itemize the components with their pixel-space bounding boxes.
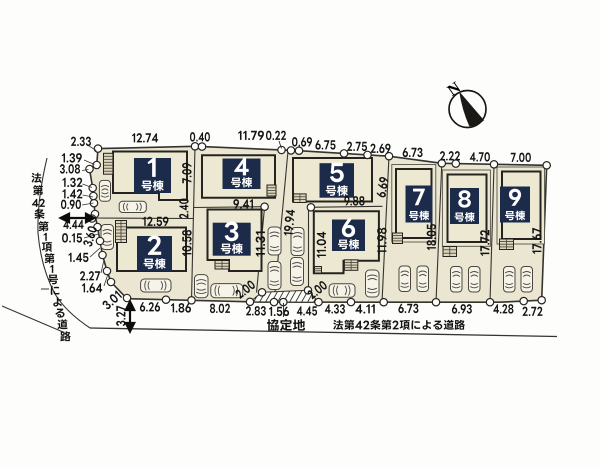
svg-text:6.93: 6.93: [452, 302, 473, 315]
svg-text:5: 5: [329, 160, 345, 186]
svg-text:4.70: 4.70: [470, 150, 491, 163]
svg-text:18.05: 18.05: [424, 223, 437, 250]
svg-text:る: る: [55, 307, 66, 319]
svg-text:1: 1: [147, 155, 158, 181]
svg-text:12.59: 12.59: [142, 215, 169, 228]
svg-text:2.22: 2.22: [440, 149, 461, 162]
svg-text:4.45: 4.45: [297, 304, 318, 317]
svg-text:42: 42: [32, 198, 46, 209]
svg-text:8.02: 8.02: [210, 302, 231, 315]
svg-text:1.45: 1.45: [68, 251, 89, 264]
svg-text:2: 2: [146, 233, 162, 259]
svg-text:3.08: 3.08: [60, 162, 81, 175]
svg-text:協定地: 協定地: [266, 319, 305, 333]
svg-text:11.31: 11.31: [254, 230, 267, 257]
svg-text:号棟: 号棟: [231, 177, 253, 189]
svg-text:項: 項: [42, 241, 53, 253]
svg-text:6.73: 6.73: [398, 302, 419, 315]
svg-text:7.09: 7.09: [180, 162, 193, 183]
svg-text:第: 第: [33, 185, 44, 197]
svg-text:1.64: 1.64: [82, 281, 103, 294]
svg-text:8: 8: [457, 187, 472, 211]
svg-text:0.22: 0.22: [266, 129, 287, 142]
svg-text:0.15: 0.15: [62, 231, 83, 244]
svg-text:0.69: 0.69: [292, 135, 313, 148]
svg-text:2.40: 2.40: [177, 198, 190, 219]
svg-text:2.33: 2.33: [71, 135, 92, 148]
svg-text:11.04: 11.04: [314, 231, 327, 258]
svg-text:法第42条第2項による道路: 法第42条第2項による道路: [333, 319, 466, 331]
svg-text:2.75: 2.75: [347, 139, 368, 152]
svg-text:0.40: 0.40: [190, 130, 211, 143]
svg-text:11.79: 11.79: [238, 129, 265, 142]
svg-text:6: 6: [341, 215, 356, 240]
svg-text:17.72: 17.72: [478, 229, 491, 256]
svg-text:1.86: 1.86: [171, 301, 192, 314]
svg-text:号棟: 号棟: [454, 211, 475, 223]
svg-text:0.90: 0.90: [61, 198, 82, 211]
svg-text:条: 条: [34, 208, 45, 220]
svg-text:17.67: 17.67: [530, 228, 543, 255]
svg-text:号棟: 号棟: [141, 179, 164, 192]
svg-text:1.56: 1.56: [269, 305, 290, 318]
svg-text:9.88: 9.88: [344, 194, 365, 207]
svg-text:2.69: 2.69: [370, 141, 391, 154]
svg-text:号棟: 号棟: [409, 210, 430, 222]
svg-text:6.26: 6.26: [140, 300, 161, 313]
svg-text:2.83: 2.83: [246, 304, 267, 317]
svg-text:に: に: [50, 285, 61, 297]
svg-text:4.11: 4.11: [355, 302, 376, 315]
svg-text:19.94: 19.94: [281, 209, 296, 237]
svg-text:9: 9: [508, 185, 522, 209]
svg-text:号棟: 号棟: [505, 210, 526, 222]
svg-text:11.98: 11.98: [375, 227, 388, 254]
svg-text:6.73: 6.73: [402, 146, 423, 159]
svg-text:12.74: 12.74: [132, 131, 159, 144]
svg-text:7.00: 7.00: [511, 151, 532, 164]
svg-text:法: 法: [31, 172, 42, 184]
svg-text:4.33: 4.33: [325, 302, 346, 315]
svg-text:2.72: 2.72: [522, 305, 543, 318]
svg-text:4.28: 4.28: [493, 302, 514, 315]
svg-text:7: 7: [412, 185, 425, 209]
svg-text:号棟: 号棟: [143, 257, 166, 270]
svg-text:6.75: 6.75: [315, 138, 336, 151]
svg-text:号棟: 号棟: [220, 242, 243, 255]
svg-text:9.41: 9.41: [233, 197, 254, 210]
svg-text:号棟: 号棟: [338, 239, 360, 251]
svg-text:10.58: 10.58: [180, 230, 193, 257]
svg-text:道: 道: [57, 319, 68, 331]
svg-text:路: 路: [60, 331, 71, 343]
svg-text:3: 3: [224, 219, 240, 245]
svg-text:4: 4: [234, 153, 250, 178]
